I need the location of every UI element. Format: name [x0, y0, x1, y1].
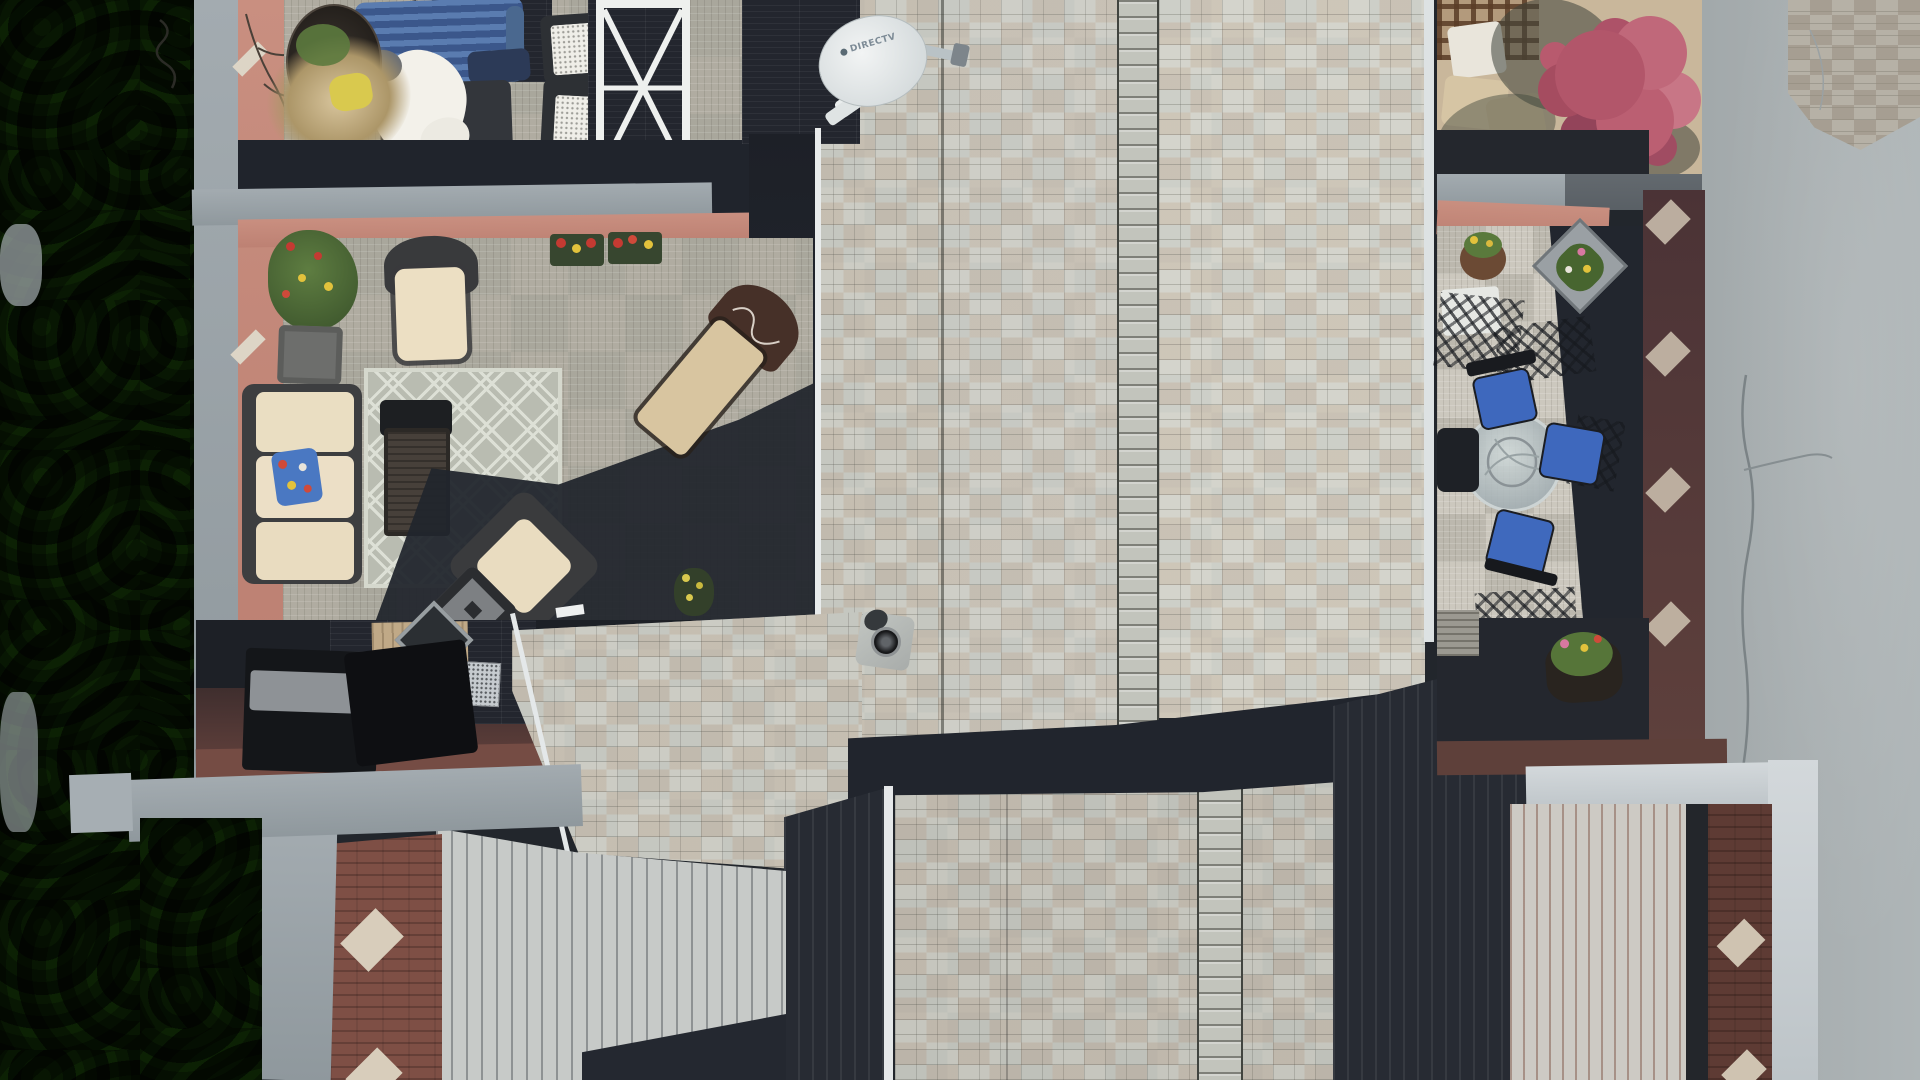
shingle-roof-east: [1159, 0, 1425, 718]
basket-foliage: [1464, 232, 1502, 258]
wicker-chair-cushion: [394, 267, 467, 361]
seam-se-shadow-strip: [1686, 804, 1710, 1080]
window-box-2: [608, 232, 662, 264]
roof-edge-trim-west: [815, 128, 821, 648]
bench-drape: [467, 48, 531, 84]
conifer-trees-south: [140, 818, 262, 1080]
crack-faint: [1810, 30, 1823, 110]
bottom-roof-trim: [884, 786, 893, 1080]
ridge-cap-upper: [1117, 0, 1159, 740]
parapet-bright-vertical: [1768, 760, 1818, 1080]
seam-roof-shaded-gap: [784, 788, 886, 1080]
hanging-basket: [1460, 238, 1506, 280]
patio-flower-planter: [268, 230, 358, 330]
sofa-cushion-3: [256, 522, 354, 580]
directv-logo-text: DIRECTV: [849, 32, 897, 55]
roof-vent-pipe: [871, 627, 901, 657]
maple-shade-strip: [1437, 130, 1649, 180]
maple-tree: [1555, 30, 1645, 120]
chair-west: [1437, 428, 1479, 492]
chair-east: [1538, 421, 1607, 487]
ridge-cap-lower: [1197, 784, 1243, 1080]
wicker-cube-table: [277, 325, 343, 385]
ground-gap-upper: [0, 224, 42, 306]
floral-pillow: [270, 447, 323, 507]
parapet-step-sw: [69, 773, 133, 833]
bottom-valley-line: [1006, 788, 1008, 1080]
sofa-cushion-1: [256, 392, 354, 452]
window-box-1: [550, 234, 604, 266]
potted-plant-small: [674, 568, 714, 616]
planter-greenery: [296, 24, 350, 66]
aerial-photo-stage: DIRECTV: [0, 0, 1920, 1080]
roof-edge-trim-east: [1424, 0, 1434, 642]
brick-wall-southwest: [330, 834, 442, 1080]
seam-roof-southeast: [1510, 804, 1692, 1080]
planter-foliage: [1549, 236, 1611, 298]
crack-branch: [1744, 454, 1832, 470]
ground-gap-lower: [0, 692, 38, 832]
shingle-roof-bottom: [895, 750, 1335, 1080]
right-deck-lit-slats: [1437, 610, 1479, 656]
flower-pot-right: [1544, 637, 1624, 704]
storage-box-2: [344, 639, 479, 767]
